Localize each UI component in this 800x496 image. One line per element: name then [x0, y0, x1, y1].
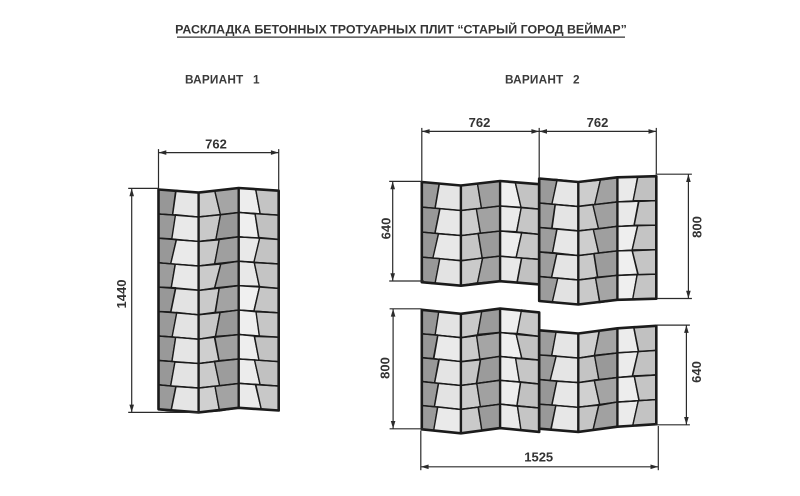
svg-text:762: 762	[469, 115, 491, 130]
svg-text:800: 800	[377, 357, 392, 379]
svg-text:762: 762	[205, 137, 227, 152]
svg-text:800: 800	[690, 216, 705, 238]
svg-text:1440: 1440	[114, 280, 129, 309]
svg-text:ВАРИАНТ 1: ВАРИАНТ 1	[185, 73, 260, 87]
svg-text:РАСКЛАДКА БЕТОННЫХ ТРОТУАРНЫХ: РАСКЛАДКА БЕТОННЫХ ТРОТУАРНЫХ ПЛИТ “СТАР…	[175, 22, 627, 37]
svg-text:640: 640	[689, 361, 704, 383]
svg-text:762: 762	[587, 115, 609, 130]
svg-text:ВАРИАНТ 2: ВАРИАНТ 2	[505, 73, 580, 87]
svg-text:640: 640	[378, 218, 393, 240]
svg-text:1525: 1525	[524, 450, 553, 465]
